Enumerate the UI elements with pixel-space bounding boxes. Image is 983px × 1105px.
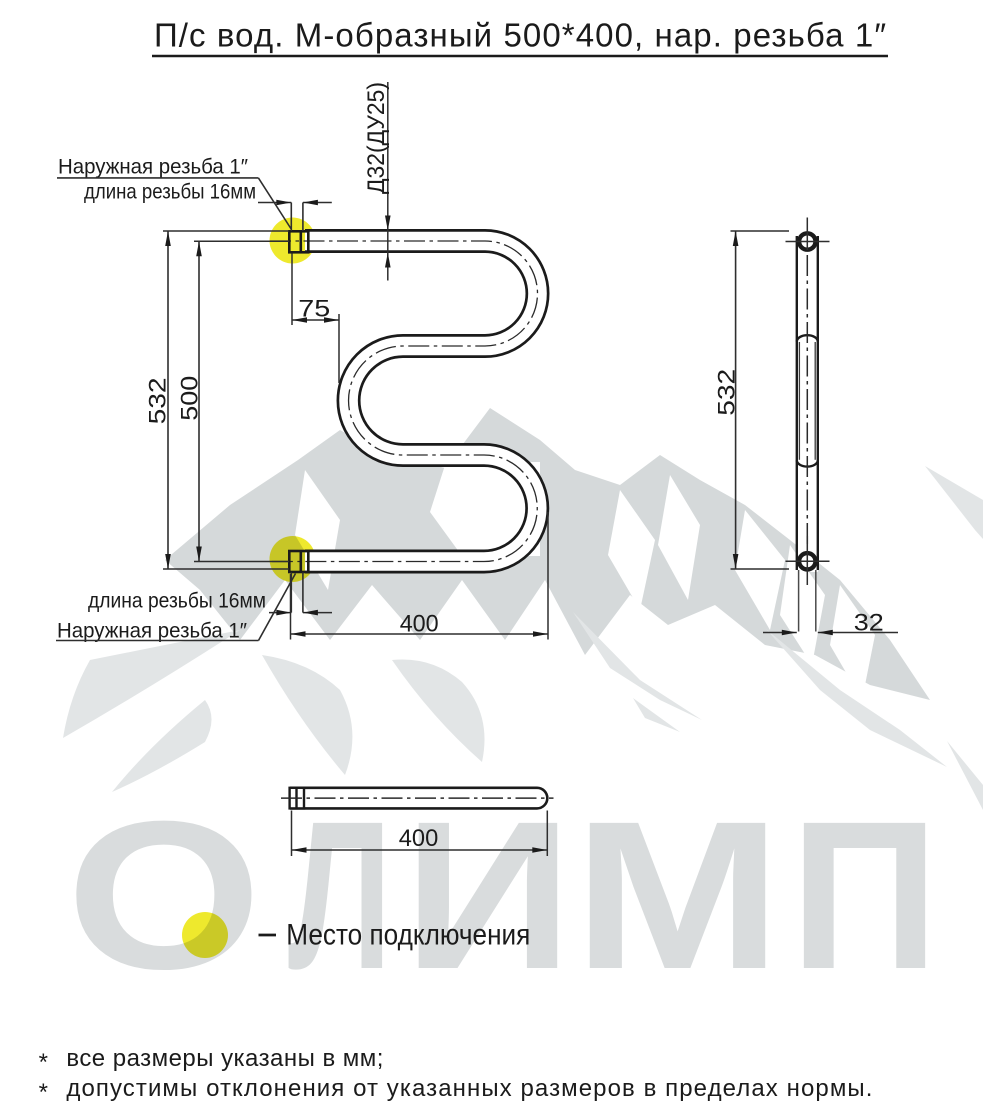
svg-text:длина резьбы 16мм: длина резьбы 16мм	[88, 590, 266, 613]
svg-text:Наружная резьба 1″: Наружная резьба 1″	[57, 620, 248, 643]
svg-text:допустимы отклонения от указан: допустимы отклонения от указанных размер…	[66, 1075, 872, 1102]
svg-text:400: 400	[399, 825, 439, 852]
svg-text:длина резьбы 16мм: длина резьбы 16мм	[84, 181, 256, 204]
svg-text:532: 532	[145, 377, 172, 424]
svg-text:*: *	[39, 1079, 48, 1105]
svg-text:Наружная резьба 1″: Наружная резьба 1″	[58, 155, 249, 178]
svg-text:Место подключения: Место подключения	[286, 919, 530, 952]
svg-text:Д32(ДУ25): Д32(ДУ25)	[363, 82, 390, 194]
svg-text:О: О	[66, 777, 262, 1013]
svg-text:П/с вод. М-образный 500*400, н: П/с вод. М-образный 500*400, нар. резьба…	[154, 16, 886, 53]
svg-text:П: П	[790, 777, 939, 1013]
svg-text:Л: Л	[288, 777, 392, 1013]
svg-text:все размеры указаны в мм;: все размеры указаны в мм;	[66, 1045, 383, 1072]
svg-text:75: 75	[298, 296, 330, 323]
svg-text:*: *	[39, 1049, 48, 1076]
svg-text:32: 32	[854, 610, 884, 637]
svg-text:500: 500	[177, 376, 204, 421]
svg-text:532: 532	[714, 369, 741, 416]
svg-text:М: М	[573, 777, 782, 1013]
svg-text:400: 400	[400, 611, 439, 638]
